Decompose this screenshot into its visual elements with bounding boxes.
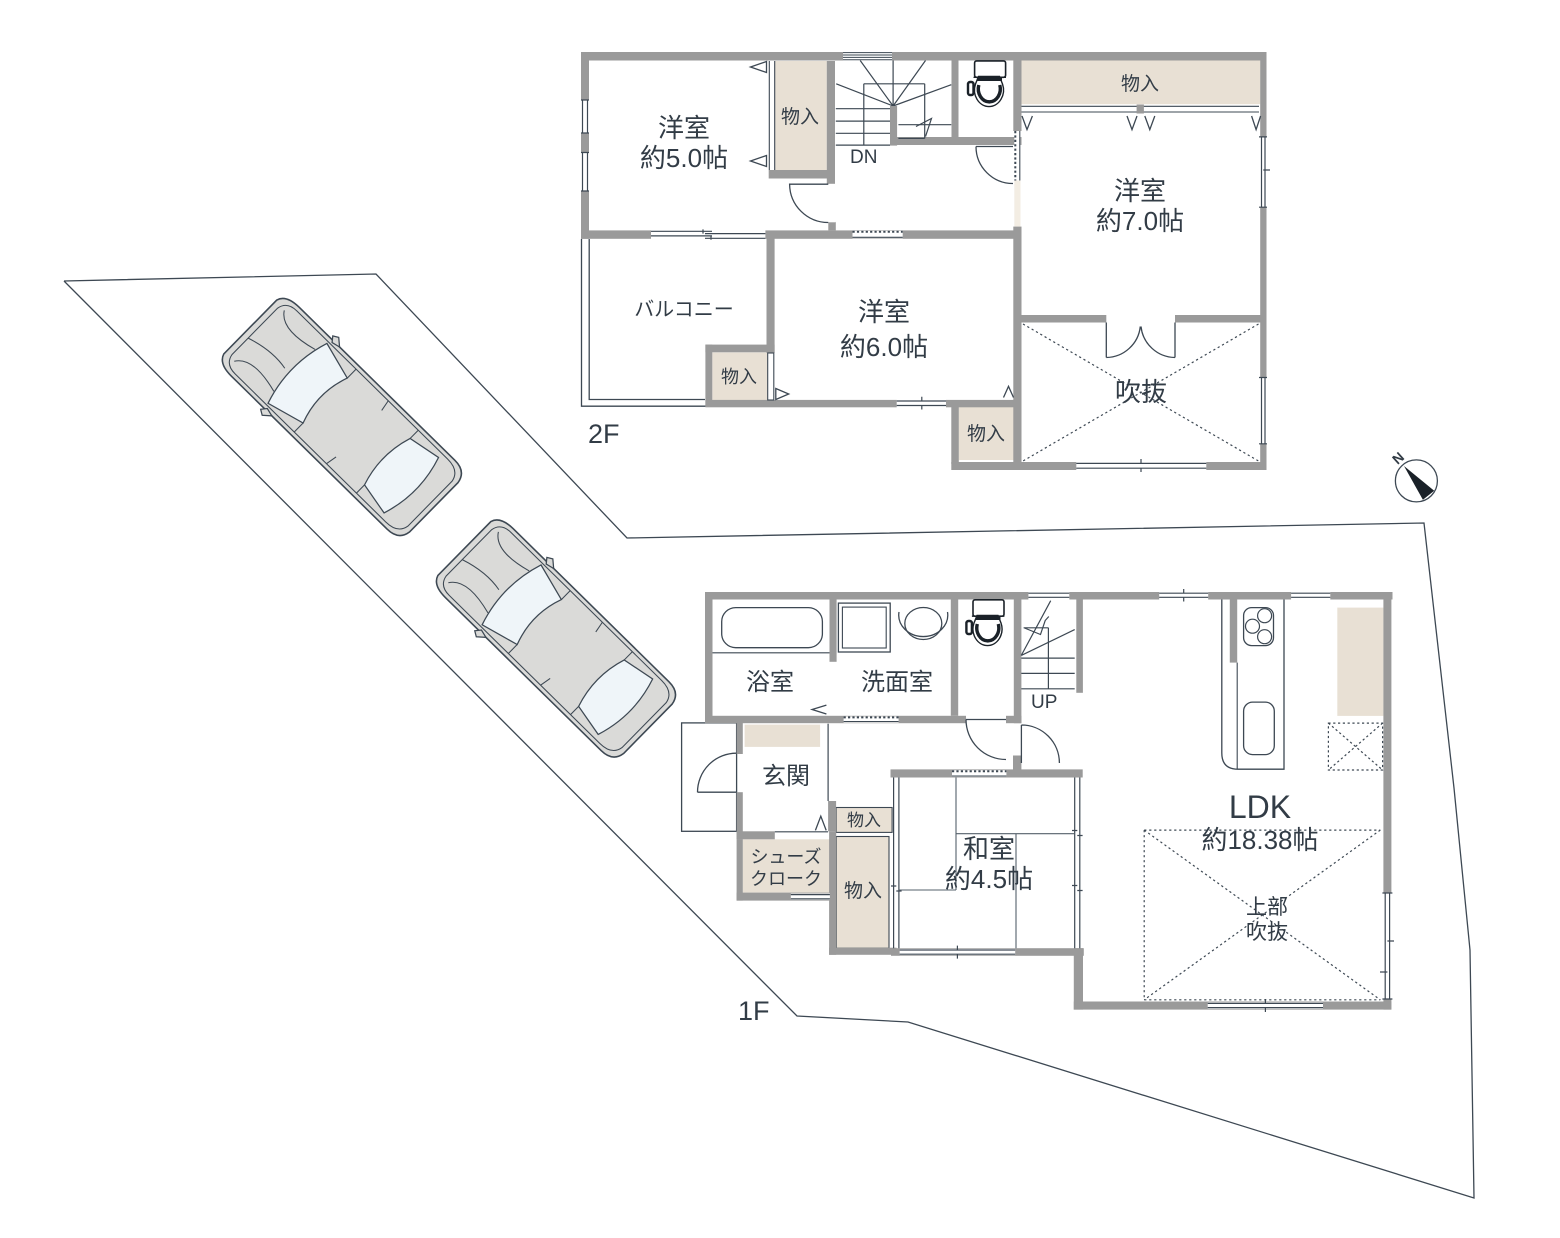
svg-text:2F: 2F [588,419,620,449]
svg-text:UP: UP [1031,692,1057,713]
svg-text:物入: 物入 [1121,73,1159,95]
svg-text:クローク: クローク [750,869,822,889]
svg-text:上部: 上部 [1246,896,1288,919]
svg-text:約5.0帖: 約5.0帖 [640,143,728,173]
svg-text:バルコニー: バルコニー [634,299,734,321]
svg-text:浴室: 浴室 [746,669,794,696]
svg-text:約7.0帖: 約7.0帖 [1096,206,1184,236]
svg-text:吹抜: 吹抜 [1246,921,1288,944]
svg-text:物入: 物入 [847,811,881,830]
svg-text:約6.0帖: 約6.0帖 [840,332,928,362]
svg-text:シューズ: シューズ [750,847,821,867]
svg-text:物入: 物入 [844,880,882,902]
svg-text:洋室: 洋室 [1114,176,1166,206]
svg-text:約18.38帖: 約18.38帖 [1201,825,1318,855]
svg-text:約4.5帖: 約4.5帖 [945,864,1033,894]
svg-text:洋室: 洋室 [658,113,710,143]
svg-text:LDK: LDK [1229,789,1291,825]
svg-text:物入: 物入 [781,106,819,128]
svg-text:N: N [1389,449,1407,468]
svg-text:1F: 1F [738,996,770,1026]
svg-text:DN: DN [850,147,877,168]
svg-text:和室: 和室 [963,834,1015,864]
svg-text:物入: 物入 [967,423,1005,445]
svg-text:洗面室: 洗面室 [861,669,933,696]
svg-text:玄関: 玄関 [762,763,810,790]
svg-text:吹抜: 吹抜 [1115,377,1167,407]
svg-text:洋室: 洋室 [858,297,910,327]
svg-text:物入: 物入 [721,367,757,387]
